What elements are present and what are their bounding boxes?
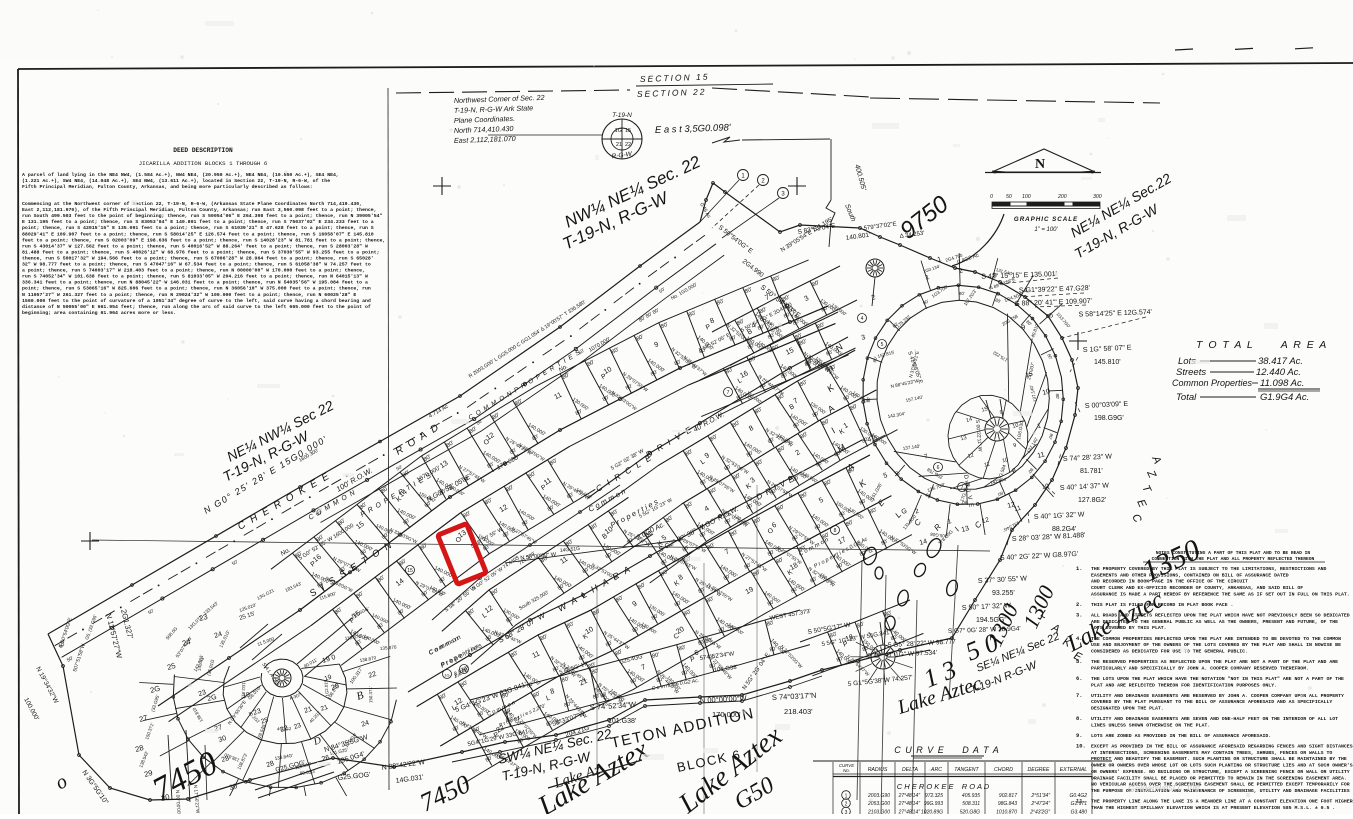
- svg-text:DEGREE: DEGREE: [1028, 767, 1050, 773]
- svg-text:EXTERNAL: EXTERNAL: [1060, 767, 1088, 773]
- svg-text:LINES UNLESS SHOWN OTHERWISE O: LINES UNLESS SHOWN OTHERWISE ON THE PLAT…: [1091, 722, 1210, 728]
- svg-text:(1.221 Ac.+), SW4 NE4, (14.048: (1.221 Ac.+), SW4 NE4, (14.048 Ac.+), SE…: [22, 178, 330, 184]
- svg-text:2°43'2G": 2°43'2G": [1029, 809, 1050, 814]
- svg-text:81.488 feet to a point; thence: 81.488 feet to a point; thence, run S 40…: [22, 249, 380, 255]
- svg-text:THE COMMON PROPERTIES REFLECTE: THE COMMON PROPERTIES REFLECTED UPON THE…: [1091, 636, 1341, 642]
- svg-text:thence, run S 50017'32" W 194.: thence, run S 50017'32" W 194.566 feet t…: [22, 256, 374, 262]
- svg-text:1” = 100': 1” = 100': [1034, 227, 1058, 233]
- svg-text:972.325: 972.325: [925, 793, 943, 799]
- svg-text:LOTS ARE ZONED AS PROVIDED IN: LOTS ARE ZONED AS PROVIDED IN THE BILL O…: [1091, 733, 1271, 739]
- svg-text:1G: 1G: [444, 673, 449, 678]
- svg-text:COVERED BY THE PLAT PURSUANT T: COVERED BY THE PLAT PURSUANT TO THE BILL…: [1091, 699, 1332, 705]
- svg-text:0: 0: [990, 194, 993, 200]
- svg-text:902.817: 902.817: [999, 793, 1017, 799]
- svg-text:No.: No.: [843, 768, 850, 773]
- svg-text:15: 15: [407, 568, 413, 574]
- svg-text:15: 15: [625, 128, 631, 134]
- svg-text:UTILITY AND DRAINAGE EASEMENTS: UTILITY AND DRAINAGE EASEMENTS ARE RESER…: [1091, 693, 1344, 699]
- svg-text:21: 21: [616, 142, 622, 148]
- svg-text:PLAT AND ARE REFLECTED THEREON: PLAT AND ARE REFLECTED THEREON FOR IDENT…: [1091, 682, 1277, 688]
- svg-text:E 131.195 feet to a point; the: E 131.195 feet to a point; thence, run S…: [22, 219, 374, 225]
- svg-text:Total: Total: [1176, 392, 1197, 403]
- svg-text:East 2,112,181.970), of the Fi: East 2,112,181.970), of the Fifth Princi…: [22, 207, 377, 213]
- svg-text:8: 8: [834, 528, 837, 534]
- svg-text:JICARILLA ADDITION BLOCKS 1 TH: JICARILLA ADDITION BLOCKS 1 THROUGH 6: [139, 160, 268, 167]
- svg-text:12.440 Ac.: 12.440 Ac.: [1256, 367, 1301, 378]
- svg-text:point; thence, run S 42015'15": point; thence, run S 42015'15" E 135.091…: [22, 225, 374, 231]
- svg-text:G0.4G2: G0.4G2: [1069, 793, 1087, 799]
- svg-text:150.371': 150.371': [368, 686, 373, 703]
- svg-text:405.935: 405.935: [962, 793, 980, 799]
- svg-text:22: 22: [625, 142, 631, 148]
- svg-text:6.: 6.: [1076, 676, 1082, 682]
- svg-text:DRAINAGE FACILITY SHALL BE PLA: DRAINAGE FACILITY SHALL BE PLACED OR PER…: [1091, 775, 1347, 781]
- svg-text:7: 7: [961, 485, 964, 491]
- svg-text:1G2.015: 1G2.015: [241, 682, 247, 699]
- svg-text:6: 6: [937, 465, 940, 471]
- svg-text:THE LOTS UPON THE PLAT WHICH H: THE LOTS UPON THE PLAT WHICH HAVE THE NO…: [1091, 676, 1344, 682]
- svg-text:DESIGNATED UPON THE PLAT.: DESIGNATED UPON THE PLAT.: [1091, 706, 1164, 712]
- svg-text:N: N: [1035, 157, 1045, 172]
- svg-text:101.G38': 101.G38': [608, 718, 636, 725]
- svg-text:100: 100: [1022, 194, 1031, 200]
- svg-text:G3.480: G3.480: [1071, 809, 1088, 814]
- svg-text:TANGENT: TANGENT: [954, 767, 979, 773]
- svg-text:2053.G00: 2053.G00: [867, 801, 890, 807]
- svg-text:7.: 7.: [1076, 693, 1082, 699]
- svg-text:93.255': 93.255': [992, 590, 1015, 597]
- svg-text:THE PROPERTY COVERED BY THIS P: THE PROPERTY COVERED BY THIS PLAT IS SUB…: [1091, 566, 1327, 572]
- svg-text:38.417 Ac.: 38.417 Ac.: [1258, 356, 1303, 367]
- svg-text:1G: 1G: [615, 128, 622, 134]
- svg-text:C U R V E D A T A: C U R V E D A T A: [894, 745, 1000, 755]
- svg-text:98G.843: 98G.843: [998, 801, 1017, 807]
- svg-text:EXCEPT AS PROVIDED IN THE BILL: EXCEPT AS PROVIDED IN THE BILL OF ASSURA…: [1091, 744, 1353, 750]
- svg-text:COURT CLERK AND EX-OFFICIO REC: COURT CLERK AND EX-OFFICIO RECORDER OF C…: [1091, 585, 1303, 591]
- svg-text:DELTA: DELTA: [902, 767, 918, 773]
- svg-text:G1.971: G1.971: [1071, 801, 1088, 807]
- svg-text:run S 74052'34" W 101.638 feet: run S 74052'34" W 101.638 feet to a poin…: [22, 274, 368, 280]
- svg-text:218.403': 218.403': [784, 707, 813, 716]
- svg-text:80': 80': [866, 396, 871, 402]
- svg-text:10.: 10.: [1076, 744, 1086, 750]
- svg-text:2.: 2.: [1076, 602, 1082, 608]
- svg-text:A parcel of land lying in the: A parcel of land lying in the NE4 NW4, (…: [22, 172, 339, 178]
- svg-text:1.: 1.: [1076, 566, 1082, 572]
- svg-text:2103.G00: 2103.G00: [867, 809, 890, 814]
- svg-text:C H E R O K E E R O A D: C H E R O K E E R O A D: [897, 782, 990, 791]
- svg-text:a point; thence, run S 74003'1: a point; thence, run S 74003'17" W 218.4…: [22, 268, 365, 274]
- svg-text:508.311: 508.311: [962, 801, 980, 807]
- svg-text:5: 5: [881, 342, 884, 348]
- svg-text:2°51'34": 2°51'34": [1030, 793, 1050, 799]
- svg-text:200: 200: [1057, 194, 1067, 200]
- svg-text:80': 80': [1055, 393, 1060, 399]
- svg-text:99G.993: 99G.993: [924, 801, 943, 807]
- svg-text:run South 499.503 feet to the: run South 499.503 feet to the point of b…: [22, 213, 383, 219]
- svg-text:1560.000 feet to the point of: 1560.000 feet to the point of curvature …: [22, 298, 371, 304]
- svg-text:Commencing at the Northwest co: Commencing at the Northwest corner of Se…: [22, 201, 362, 207]
- svg-text:27°48'14": 27°48'14": [898, 809, 921, 814]
- svg-text:27°48'14": 27°48'14": [898, 793, 921, 799]
- svg-text:Fifth Principal Meridian, Fult: Fifth Principal Meridian, Fulton County,…: [22, 184, 313, 190]
- svg-text:CHORD: CHORD: [994, 767, 1013, 773]
- svg-text:Streets: Streets: [1176, 367, 1206, 378]
- svg-text:OR OWNERS' EXPENSE. NO BUILDI: OR OWNERS' EXPENSE. NO BUILDING OR STRUC…: [1091, 769, 1350, 775]
- svg-text:2°47'24": 2°47'24": [1030, 801, 1050, 807]
- svg-text:336.341 feet to a point; thenc: 336.341 feet to a point; thence, run N 8…: [22, 280, 368, 286]
- svg-text:THE PROPERTY LINE ALONG THE LA: THE PROPERTY LINE ALONG THE LAKE IS A ME…: [1091, 799, 1353, 805]
- svg-text:3: 3: [845, 810, 848, 814]
- svg-text:T-19-N: T-19-N: [612, 112, 632, 119]
- svg-text:1010.870: 1010.870: [996, 809, 1017, 814]
- svg-text:point; thence, run S 53065'16": point; thence, run S 53065'16" W 825.606…: [22, 286, 371, 292]
- svg-text:300: 300: [1093, 194, 1102, 200]
- svg-text:7: 7: [727, 390, 730, 396]
- svg-text:Common Properties: Common Properties: [1172, 378, 1253, 388]
- svg-text:127.8G2': 127.8G2': [1078, 497, 1106, 504]
- svg-text:145.810': 145.810': [1094, 359, 1121, 366]
- svg-text:3.: 3.: [1076, 613, 1082, 619]
- svg-text:CONSIDERED AS DEDICATED FOR US: CONSIDERED AS DEDICATED FOR USE TO THE G…: [1091, 649, 1248, 655]
- svg-text:DEED DESCRIPTION: DEED DESCRIPTION: [173, 147, 233, 154]
- svg-text:USE AND ENJOYMENT OF THE OWNER: USE AND ENJOYMENT OF THE OWNERS OF THE L…: [1091, 642, 1341, 648]
- svg-text:88029'41" E 109.907 feet to a: 88029'41" E 109.907 feet to a point; the…: [22, 231, 374, 237]
- svg-text:T O T A L A R E A: T O T A L A R E A: [1196, 339, 1328, 351]
- svg-text:50: 50: [1006, 194, 1012, 200]
- svg-text:4: 4: [861, 316, 864, 322]
- svg-text:RADIUS: RADIUS: [868, 767, 888, 773]
- svg-text:27°48'14": 27°48'14": [898, 801, 921, 807]
- svg-text:8.: 8.: [1076, 716, 1082, 722]
- svg-text:11.098 Ac.: 11.098 Ac.: [1260, 378, 1304, 389]
- svg-text:PARTICULARLY AND SPECIFICALLY: PARTICULARLY AND SPECIFICALLY BY JOHN A.…: [1091, 665, 1309, 671]
- svg-text:520.G8G: 520.G8G: [960, 809, 980, 814]
- svg-text:ASSURANCE IS MADE A PART HEREO: ASSURANCE IS MADE A PART HEREOF BY REFER…: [1091, 591, 1350, 597]
- svg-text:1020.89G: 1020.89G: [921, 809, 943, 814]
- svg-text:beginning; area containing 61.: beginning; area containing 61.964 acres …: [22, 310, 176, 316]
- svg-text:UTILITY AND DRAINAGE EASEMENTS: UTILITY AND DRAINAGE EASEMENTS ARE SEVEN…: [1091, 716, 1338, 722]
- svg-text:32" W 98.777 feet to a point;: 32" W 98.777 feet to a point; thence, ru…: [22, 262, 371, 268]
- svg-text:distance of N 50055'00" E 661.: distance of N 50055'00" E 661.954 feet; …: [22, 304, 371, 310]
- svg-text:AT INTERSECTIONS, SCREENING EA: AT INTERSECTIONS, SCREENING EASEMENTS MA…: [1091, 750, 1332, 756]
- svg-text:ARC: ARC: [930, 767, 942, 773]
- svg-text:N 11057'27" W 261.327 feet to: N 11057'27" W 261.327 feet to a point; t…: [22, 292, 356, 298]
- svg-text:PROTECT AND BEAUTIFY THE EASEM: PROTECT AND BEAUTIFY THE EASEMENT. SUCH …: [1091, 756, 1347, 762]
- svg-text:OWNER OR OWNERS OVER WHOSE LOT: OWNER OR OWNERS OVER WHOSE LOT OR LOTS S…: [1091, 763, 1353, 769]
- svg-text:EASEMENTS AND OTHER PROVISIONS: EASEMENTS AND OTHER PROVISIONS, CONTAINE…: [1091, 572, 1289, 578]
- svg-text:GRAPHIC SCALE: GRAPHIC SCALE: [1014, 216, 1078, 223]
- svg-text:feet to a point; thence, run S: feet to a point; thence, run S 02003'09"…: [22, 237, 385, 243]
- svg-text:80': 80': [959, 291, 965, 296]
- svg-text:THAN THE HIGHEST SPILLWAY ELEV: THAN THE HIGHEST SPILLWAY ELEVATION WHIC…: [1091, 805, 1335, 811]
- svg-text:G1.9G4 Ac.: G1.9G4 Ac.: [1260, 392, 1309, 403]
- svg-text:2003.G90: 2003.G90: [867, 793, 890, 799]
- svg-text:81.781': 81.781': [1080, 468, 1103, 475]
- svg-text:THE RESERVED PROPERTIES AS REF: THE RESERVED PROPERTIES AS REFLECTED UPO…: [1091, 659, 1338, 665]
- svg-text:198.G9G': 198.G9G': [1094, 415, 1124, 422]
- svg-text:run S 43014'37" W 127.562 feet: run S 43014'37" W 127.562 feet to a poin…: [22, 243, 368, 249]
- svg-text:9.: 9.: [1076, 733, 1082, 739]
